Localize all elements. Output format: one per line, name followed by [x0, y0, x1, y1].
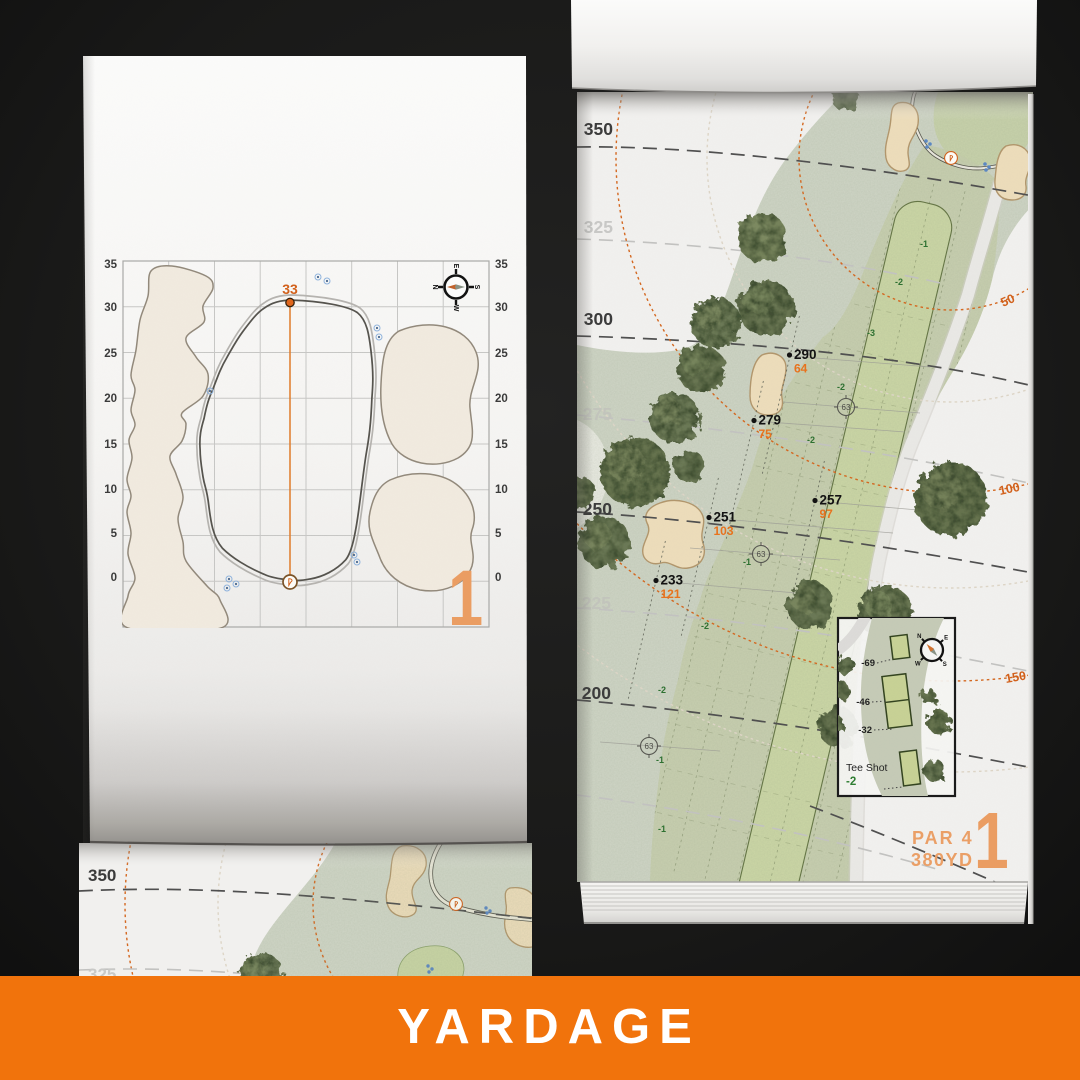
- svg-text:YARDAGE: YARDAGE: [397, 1000, 701, 1054]
